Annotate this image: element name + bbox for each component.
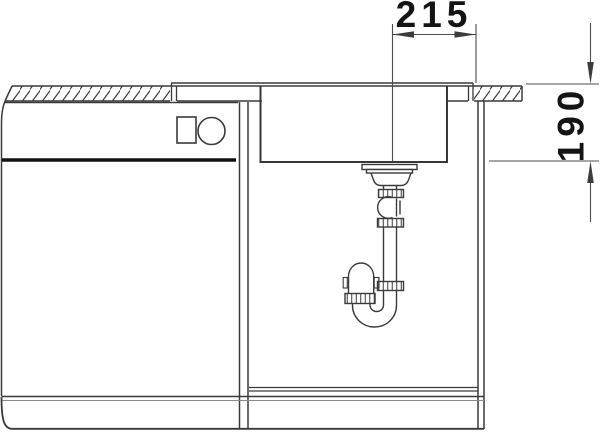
countertop (5, 86, 522, 101)
drain-flange (362, 165, 417, 170)
cabinet-bottom-edge (2, 397, 485, 429)
drain-flange-lip (367, 170, 413, 174)
appliance-controls (177, 117, 225, 145)
appliance-knob-symbol (198, 118, 225, 145)
drain-elbow (378, 197, 393, 219)
sink-installation-drawing: 215 190 (0, 0, 600, 432)
drain-assembly (343, 165, 417, 328)
base-cabinet-right-wall (478, 101, 484, 429)
left-cabinet-divider (240, 102, 249, 429)
trap-u-bend-inner (370, 304, 384, 312)
drawing-linework (0, 0, 600, 432)
trap-cap-tab-left (343, 278, 348, 289)
trap-riser-cap (349, 263, 374, 294)
trap-cap-tab-right (374, 278, 379, 289)
drain-strainer-body (371, 173, 411, 186)
drain-nut-lower (378, 219, 404, 228)
trap-u-bend-outer (353, 304, 397, 328)
arrowhead-down (587, 62, 594, 84)
trap-riser-nut (345, 294, 375, 304)
sink-basin (260, 86, 449, 162)
dimension-width (393, 24, 477, 162)
countertop-hatch-right (474, 86, 522, 101)
dimension-depth-label: 190 (553, 86, 590, 163)
left-cabinet (2, 101, 249, 429)
dimension-width-label: 215 (390, 0, 478, 33)
sink-unit (171, 83, 473, 162)
drain-pipe (384, 227, 397, 282)
base-cabinet-floor (249, 388, 478, 392)
left-cabinet-left-edge (2, 101, 6, 396)
appliance-switch-symbol (177, 117, 196, 143)
trap-pipe-nut (378, 282, 404, 291)
base-cabinet (2, 101, 485, 429)
countertop-hatch-left (5, 86, 170, 101)
arrowhead-up (587, 161, 594, 183)
